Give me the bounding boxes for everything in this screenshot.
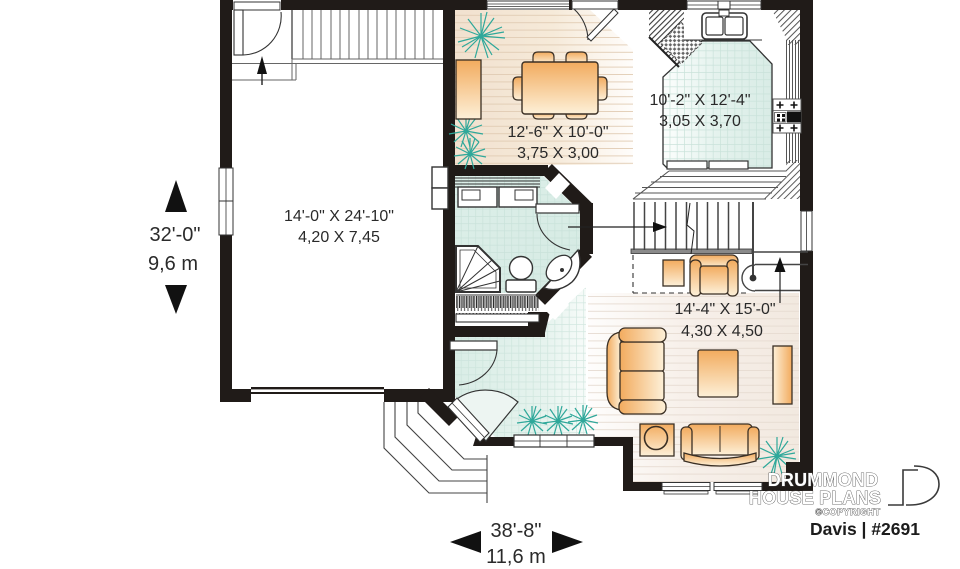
svg-text:3,05 X 3,70: 3,05 X 3,70 [659,113,741,130]
svg-text:©COPYRIGHT: ©COPYRIGHT [815,507,880,517]
svg-text:4,20 X 7,45: 4,20 X 7,45 [298,229,380,246]
svg-text:10'-2" X 12'-4": 10'-2" X 12'-4" [649,92,750,109]
svg-text:38'-8": 38'-8" [491,520,542,542]
svg-text:14'-0" X 24'-10": 14'-0" X 24'-10" [284,208,394,225]
svg-text:DRUMMOND: DRUMMOND [768,470,879,490]
svg-text:32'-0": 32'-0" [150,224,201,246]
svg-text:3,75 X 3,00: 3,75 X 3,00 [517,145,599,162]
svg-text:Davis | #2691: Davis | #2691 [810,519,920,539]
svg-text:HOUSE PLANS: HOUSE PLANS [749,488,881,508]
svg-text:12'-6" X 10'-0": 12'-6" X 10'-0" [507,124,608,141]
svg-text:4,30 X 4,50: 4,30 X 4,50 [681,323,763,340]
svg-text:14'-4" X 15'-0": 14'-4" X 15'-0" [674,301,775,318]
svg-text:9,6 m: 9,6 m [148,253,198,275]
svg-text:11,6 m: 11,6 m [486,546,546,568]
